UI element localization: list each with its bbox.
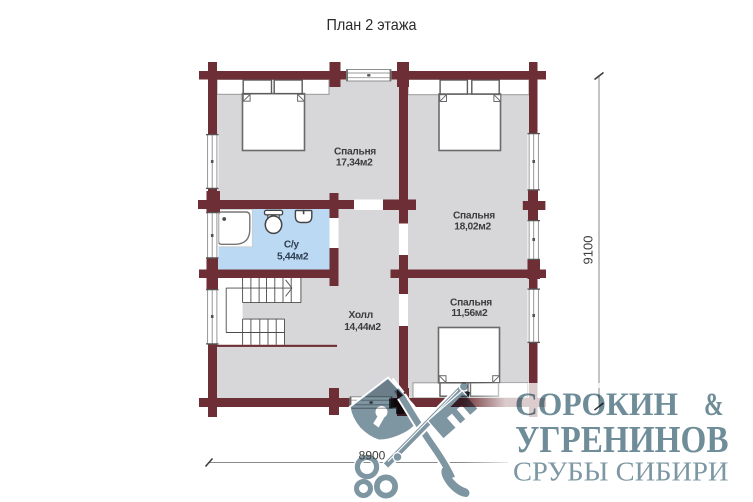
svg-text:СОРОКИН: СОРОКИН: [515, 387, 678, 423]
svg-text:Холл: Холл: [349, 310, 373, 321]
svg-text:С/у: С/у: [284, 239, 300, 250]
svg-text:&: &: [704, 387, 724, 423]
svg-text:17,34м2: 17,34м2: [336, 158, 373, 169]
svg-text:9100: 9100: [581, 236, 596, 265]
svg-text:СРУБЫ СИБИРИ: СРУБЫ СИБИРИ: [513, 456, 729, 487]
svg-text:Спальня: Спальня: [450, 298, 492, 309]
svg-text:8900: 8900: [359, 449, 386, 463]
svg-text:11,56м2: 11,56м2: [451, 308, 488, 319]
svg-text:Спальня: Спальня: [334, 147, 376, 158]
svg-text:18,02м2: 18,02м2: [454, 221, 491, 232]
svg-text:5,44м2: 5,44м2: [277, 251, 309, 262]
svg-text:14,44м2: 14,44м2: [344, 322, 381, 333]
svg-text:Спальня: Спальня: [453, 211, 495, 222]
svg-text:План 2 этажа: План 2 этажа: [327, 17, 417, 34]
